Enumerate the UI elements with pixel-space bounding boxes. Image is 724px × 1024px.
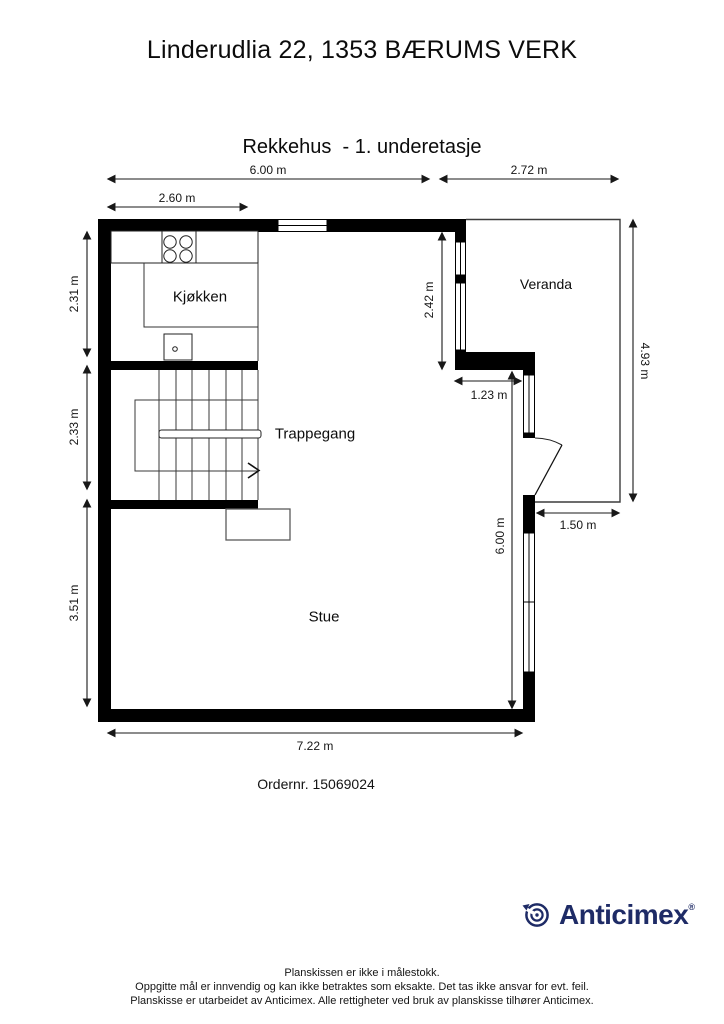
wall-bottom bbox=[98, 709, 535, 722]
dim-label-living-height: 6.00 m bbox=[493, 518, 507, 555]
wall-kitchen-stairs bbox=[98, 361, 258, 370]
kitchen-zone-lines bbox=[144, 263, 258, 361]
veranda-door bbox=[523, 438, 563, 495]
dim-label-kitchen-depth: 2.31 m bbox=[67, 276, 81, 313]
door-opening bbox=[523, 438, 536, 495]
footer-line-2: Oppgitte mål er innvendig og kan ikke be… bbox=[0, 980, 724, 994]
room-label-veranda: Veranda bbox=[520, 276, 572, 292]
window-veranda-passage bbox=[524, 375, 535, 433]
logo-brand-text: Anticimex® bbox=[559, 899, 694, 931]
floorplan-page: Linderudlia 22, 1353 BÆRUMS VERK Rekkehu… bbox=[0, 0, 724, 1024]
window-living-right bbox=[524, 533, 535, 672]
room-label-stairwell: Trappegang bbox=[275, 426, 355, 443]
dim-label-veranda-height: 4.93 m bbox=[638, 343, 652, 380]
room-label-living-room: Stue bbox=[309, 609, 340, 626]
footer-line-3: Planskisse er utarbeidet av Anticimex. A… bbox=[0, 994, 724, 1008]
dim-label-veranda-bottom-width: 1.50 m bbox=[560, 518, 597, 532]
staircase bbox=[135, 370, 261, 500]
windows bbox=[278, 220, 535, 673]
order-number: Ordernr. 15069024 bbox=[0, 776, 632, 792]
stair-handrail bbox=[159, 430, 261, 438]
wall-stairs-living bbox=[98, 500, 258, 509]
footer-line-1: Planskissen er ikke i målestokk. bbox=[0, 966, 724, 980]
understairs-cabinet bbox=[226, 509, 290, 540]
door-leaf bbox=[535, 445, 562, 495]
footer-disclaimer: Planskissen er ikke i målestokk. Oppgitt… bbox=[0, 966, 724, 1008]
room-label-kitchen: Kjøkken bbox=[173, 289, 227, 306]
dim-label-top-width: 6.00 m bbox=[250, 163, 287, 177]
registered-mark: ® bbox=[688, 902, 694, 912]
door-swing-arc bbox=[535, 438, 562, 445]
anticimex-swirl-icon bbox=[521, 899, 553, 931]
dim-label-kitchen-width: 2.60 m bbox=[159, 191, 196, 205]
dim-label-bottom-width: 7.22 m bbox=[297, 739, 334, 753]
dim-label-passage-width: 1.23 m bbox=[471, 388, 508, 402]
anticimex-logo: Anticimex® bbox=[521, 899, 694, 931]
window-kitchen-right-2 bbox=[456, 283, 466, 350]
dim-label-stairwell-depth: 2.33 m bbox=[67, 409, 81, 446]
window-top-wall bbox=[278, 220, 327, 232]
wall-left bbox=[98, 219, 111, 722]
dim-label-veranda-width: 2.72 m bbox=[511, 163, 548, 177]
floorplan-drawing bbox=[0, 0, 724, 1024]
sink-icon bbox=[164, 334, 192, 360]
dim-label-kitchen-right-height: 2.42 m bbox=[422, 282, 436, 319]
dim-label-living-depth: 3.51 m bbox=[67, 585, 81, 622]
window-kitchen-right-1 bbox=[456, 242, 466, 275]
